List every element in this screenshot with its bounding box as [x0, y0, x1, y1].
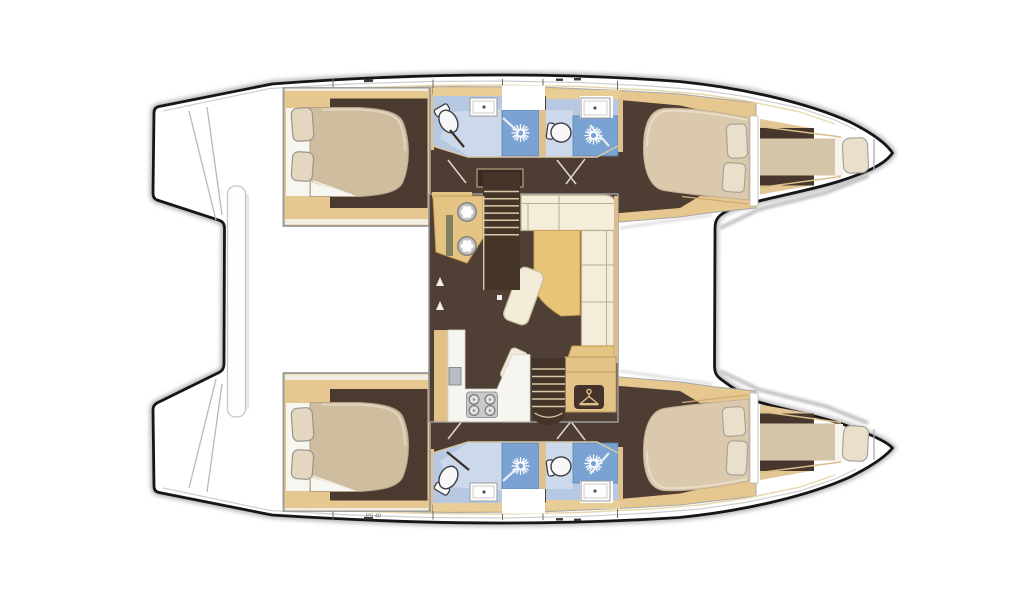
svg-text:PS 40: PS 40 [366, 514, 381, 520]
